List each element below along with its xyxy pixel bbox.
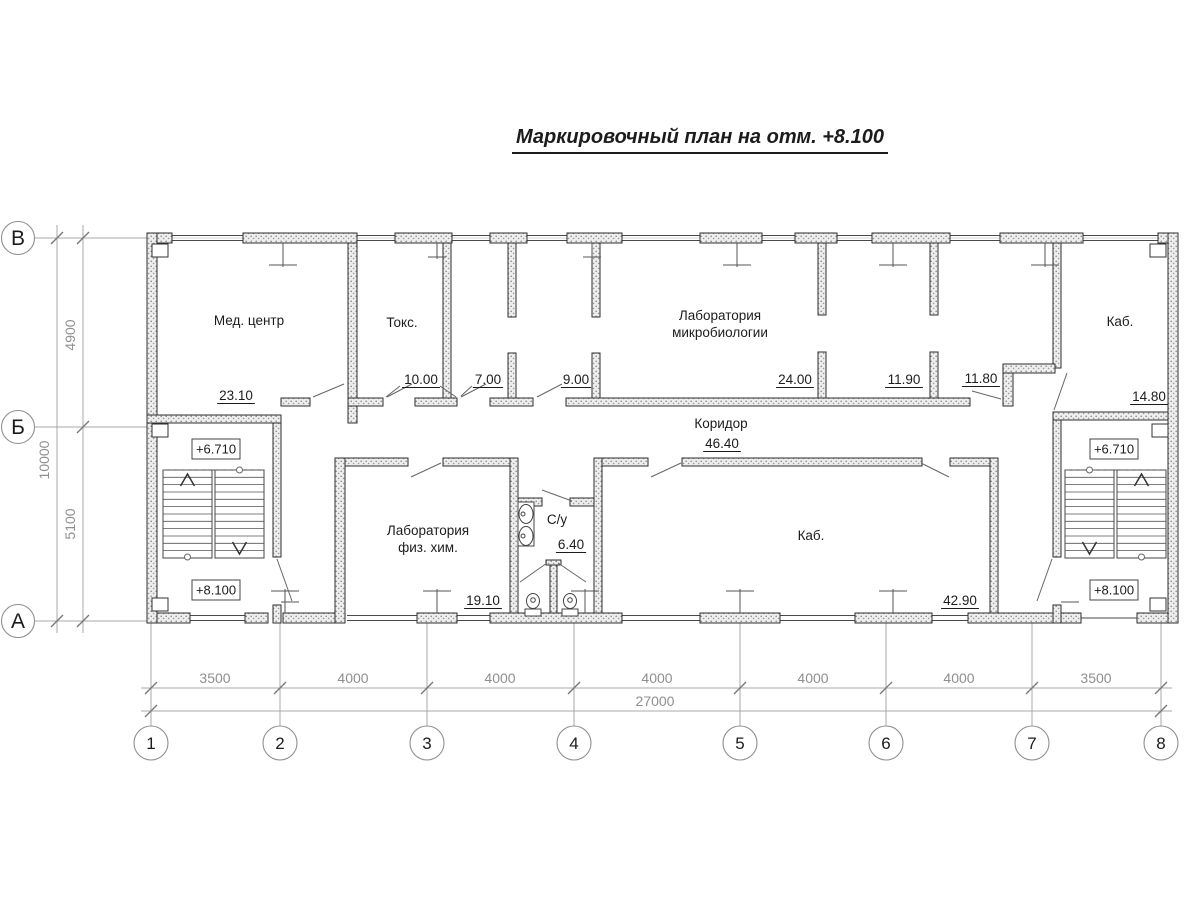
dim-total-label: 10000 [36, 440, 52, 479]
column-square [1152, 424, 1168, 437]
wall [395, 233, 452, 243]
wall [1000, 233, 1083, 243]
wall [508, 243, 516, 317]
wall [273, 605, 281, 623]
wall [348, 398, 383, 406]
room-area-label: 10.00 [404, 372, 438, 387]
stair-post [185, 554, 191, 560]
room-name-label: Токс. [386, 315, 417, 330]
column-square [1150, 244, 1166, 257]
wall [700, 613, 780, 623]
room-name-label: Мед. центр [214, 313, 284, 328]
toilet-tank [525, 609, 541, 616]
plan-title: Маркировочный план на отм. +8.100 [512, 126, 888, 154]
stair-post [237, 467, 243, 473]
wall [566, 398, 970, 406]
wall [855, 613, 932, 623]
wall [443, 458, 518, 466]
column-square [152, 424, 168, 437]
drawing-sheet: Маркировочный план на отм. +8.100 350040… [0, 0, 1200, 900]
wall [443, 243, 451, 406]
wall [1053, 420, 1061, 557]
axis-bubble-label: Б [11, 416, 25, 439]
room-area-label: 46.40 [705, 436, 739, 451]
room-name-label: Лаборатория [387, 523, 469, 538]
wall [1168, 233, 1178, 623]
wall [348, 243, 357, 423]
room-name-label: Каб. [798, 528, 825, 543]
dim-label: 3500 [199, 670, 230, 686]
wall [1053, 605, 1061, 623]
dim-label: 4000 [641, 670, 672, 686]
wall [1053, 243, 1061, 368]
wall [1003, 364, 1055, 373]
wall [490, 398, 533, 406]
elevation-label: +8.100 [1094, 583, 1134, 598]
wall [245, 613, 268, 623]
wall [567, 233, 622, 243]
wall [795, 233, 837, 243]
room-name-label: микробиологии [672, 325, 768, 340]
room-area-label: 23.10 [219, 388, 253, 403]
dim-label: 4900 [62, 319, 78, 350]
stairs-left [163, 467, 264, 560]
stall-partition-cap [546, 560, 561, 565]
corner-columns [152, 244, 1168, 611]
stair-post [1139, 554, 1145, 560]
dim-label: 4000 [484, 670, 515, 686]
elevation-label: +6.710 [196, 442, 236, 457]
wall [415, 398, 457, 406]
wall [147, 415, 281, 423]
stair-post [1087, 467, 1093, 473]
dim-label: 4000 [337, 670, 368, 686]
dim-label: 5100 [62, 508, 78, 539]
wall [335, 458, 408, 466]
wall [930, 243, 938, 315]
column-marks [269, 243, 1079, 613]
dim-label: 4000 [943, 670, 974, 686]
elevation-label: +6.710 [1094, 442, 1134, 457]
dim-total-label: 27000 [636, 693, 675, 709]
elevation-label: +8.100 [196, 583, 236, 598]
room-name-label: Лаборатория [679, 308, 761, 323]
room-area-label: 11.90 [888, 372, 921, 387]
toilet-bowl [564, 594, 577, 609]
stall-partition [550, 560, 557, 613]
room-name-label: Каб. [1107, 314, 1134, 329]
wall [818, 243, 826, 315]
wall [243, 233, 357, 243]
room-area-label: 42.90 [943, 593, 977, 608]
wall [273, 423, 281, 557]
wall [510, 458, 518, 613]
axis-bubble-label: 4 [569, 734, 578, 753]
wall [968, 613, 1081, 623]
room-area-label: 6.40 [558, 537, 584, 552]
axis-bubble-label: В [11, 227, 25, 250]
walls [147, 233, 1178, 623]
stairs-right [1065, 467, 1166, 560]
room-area-label: 24.00 [778, 372, 812, 387]
column-square [152, 244, 168, 257]
wall [872, 233, 950, 243]
axis-bubble-label: А [11, 610, 25, 633]
axis-bubble-label: 2 [275, 734, 284, 753]
wall [490, 233, 527, 243]
room-name-label: Коридор [694, 416, 747, 431]
wall [570, 498, 594, 506]
room-area-label: 9.00 [563, 372, 589, 387]
wall [281, 398, 310, 406]
door-swings [277, 373, 1067, 601]
column-square [1150, 598, 1166, 611]
room-name-label: С/у [547, 512, 568, 527]
room-area-label: 7.00 [475, 372, 501, 387]
axis-bubble-label: 7 [1027, 734, 1036, 753]
wall [682, 458, 922, 466]
axis-bubble-label: 8 [1156, 734, 1165, 753]
room-area-label: 19.10 [466, 593, 500, 608]
wall [592, 243, 600, 317]
axis-bubble-label: 5 [735, 734, 744, 753]
wall [283, 613, 340, 623]
toilet-bowl [527, 594, 540, 609]
wall [594, 458, 602, 613]
axis-bubble-label: 1 [146, 734, 155, 753]
room-area-label: 11.80 [965, 371, 998, 386]
dim-label: 4000 [797, 670, 828, 686]
axis-bubble-label: 6 [881, 734, 890, 753]
wall [990, 458, 998, 613]
room-name-label: физ. хим. [398, 540, 458, 555]
room-area-label: 14.80 [1132, 389, 1166, 404]
toilet-tank [562, 609, 578, 616]
wall [700, 233, 762, 243]
column-square [152, 598, 168, 611]
wall [1053, 412, 1168, 420]
axis-bubble-label: 3 [422, 734, 431, 753]
wall [417, 613, 457, 623]
windows [172, 236, 1158, 621]
dim-label: 3500 [1080, 670, 1111, 686]
wall [490, 613, 622, 623]
wall [335, 458, 345, 623]
